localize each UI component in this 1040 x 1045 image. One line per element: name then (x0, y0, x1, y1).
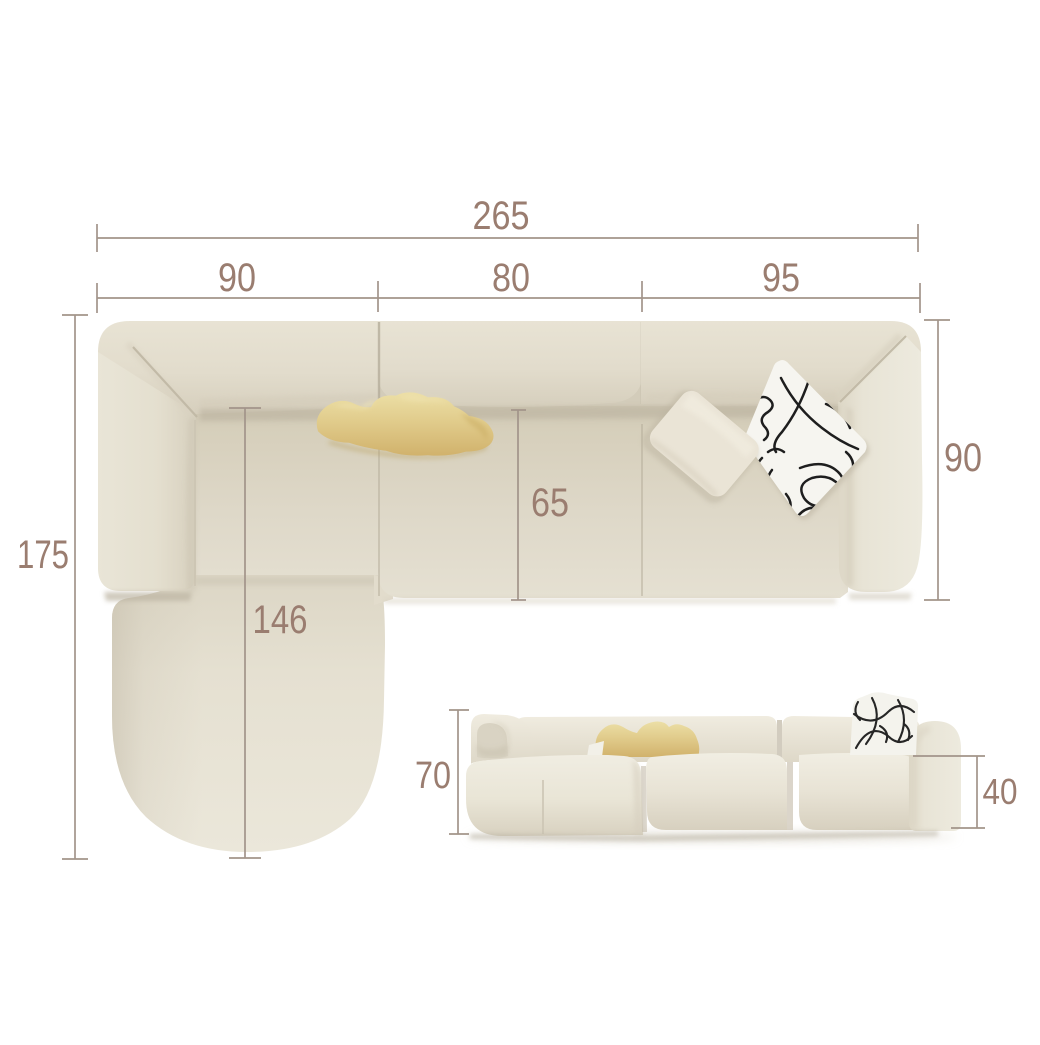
svg-text:95: 95 (762, 256, 800, 300)
svg-text:40: 40 (983, 771, 1018, 812)
svg-text:265: 265 (473, 194, 530, 238)
svg-text:70: 70 (415, 755, 451, 797)
svg-text:175: 175 (17, 533, 69, 577)
svg-text:65: 65 (531, 481, 569, 525)
svg-text:90: 90 (218, 256, 256, 300)
svg-text:90: 90 (944, 436, 982, 480)
svg-text:146: 146 (253, 598, 308, 642)
svg-text:80: 80 (492, 256, 530, 300)
